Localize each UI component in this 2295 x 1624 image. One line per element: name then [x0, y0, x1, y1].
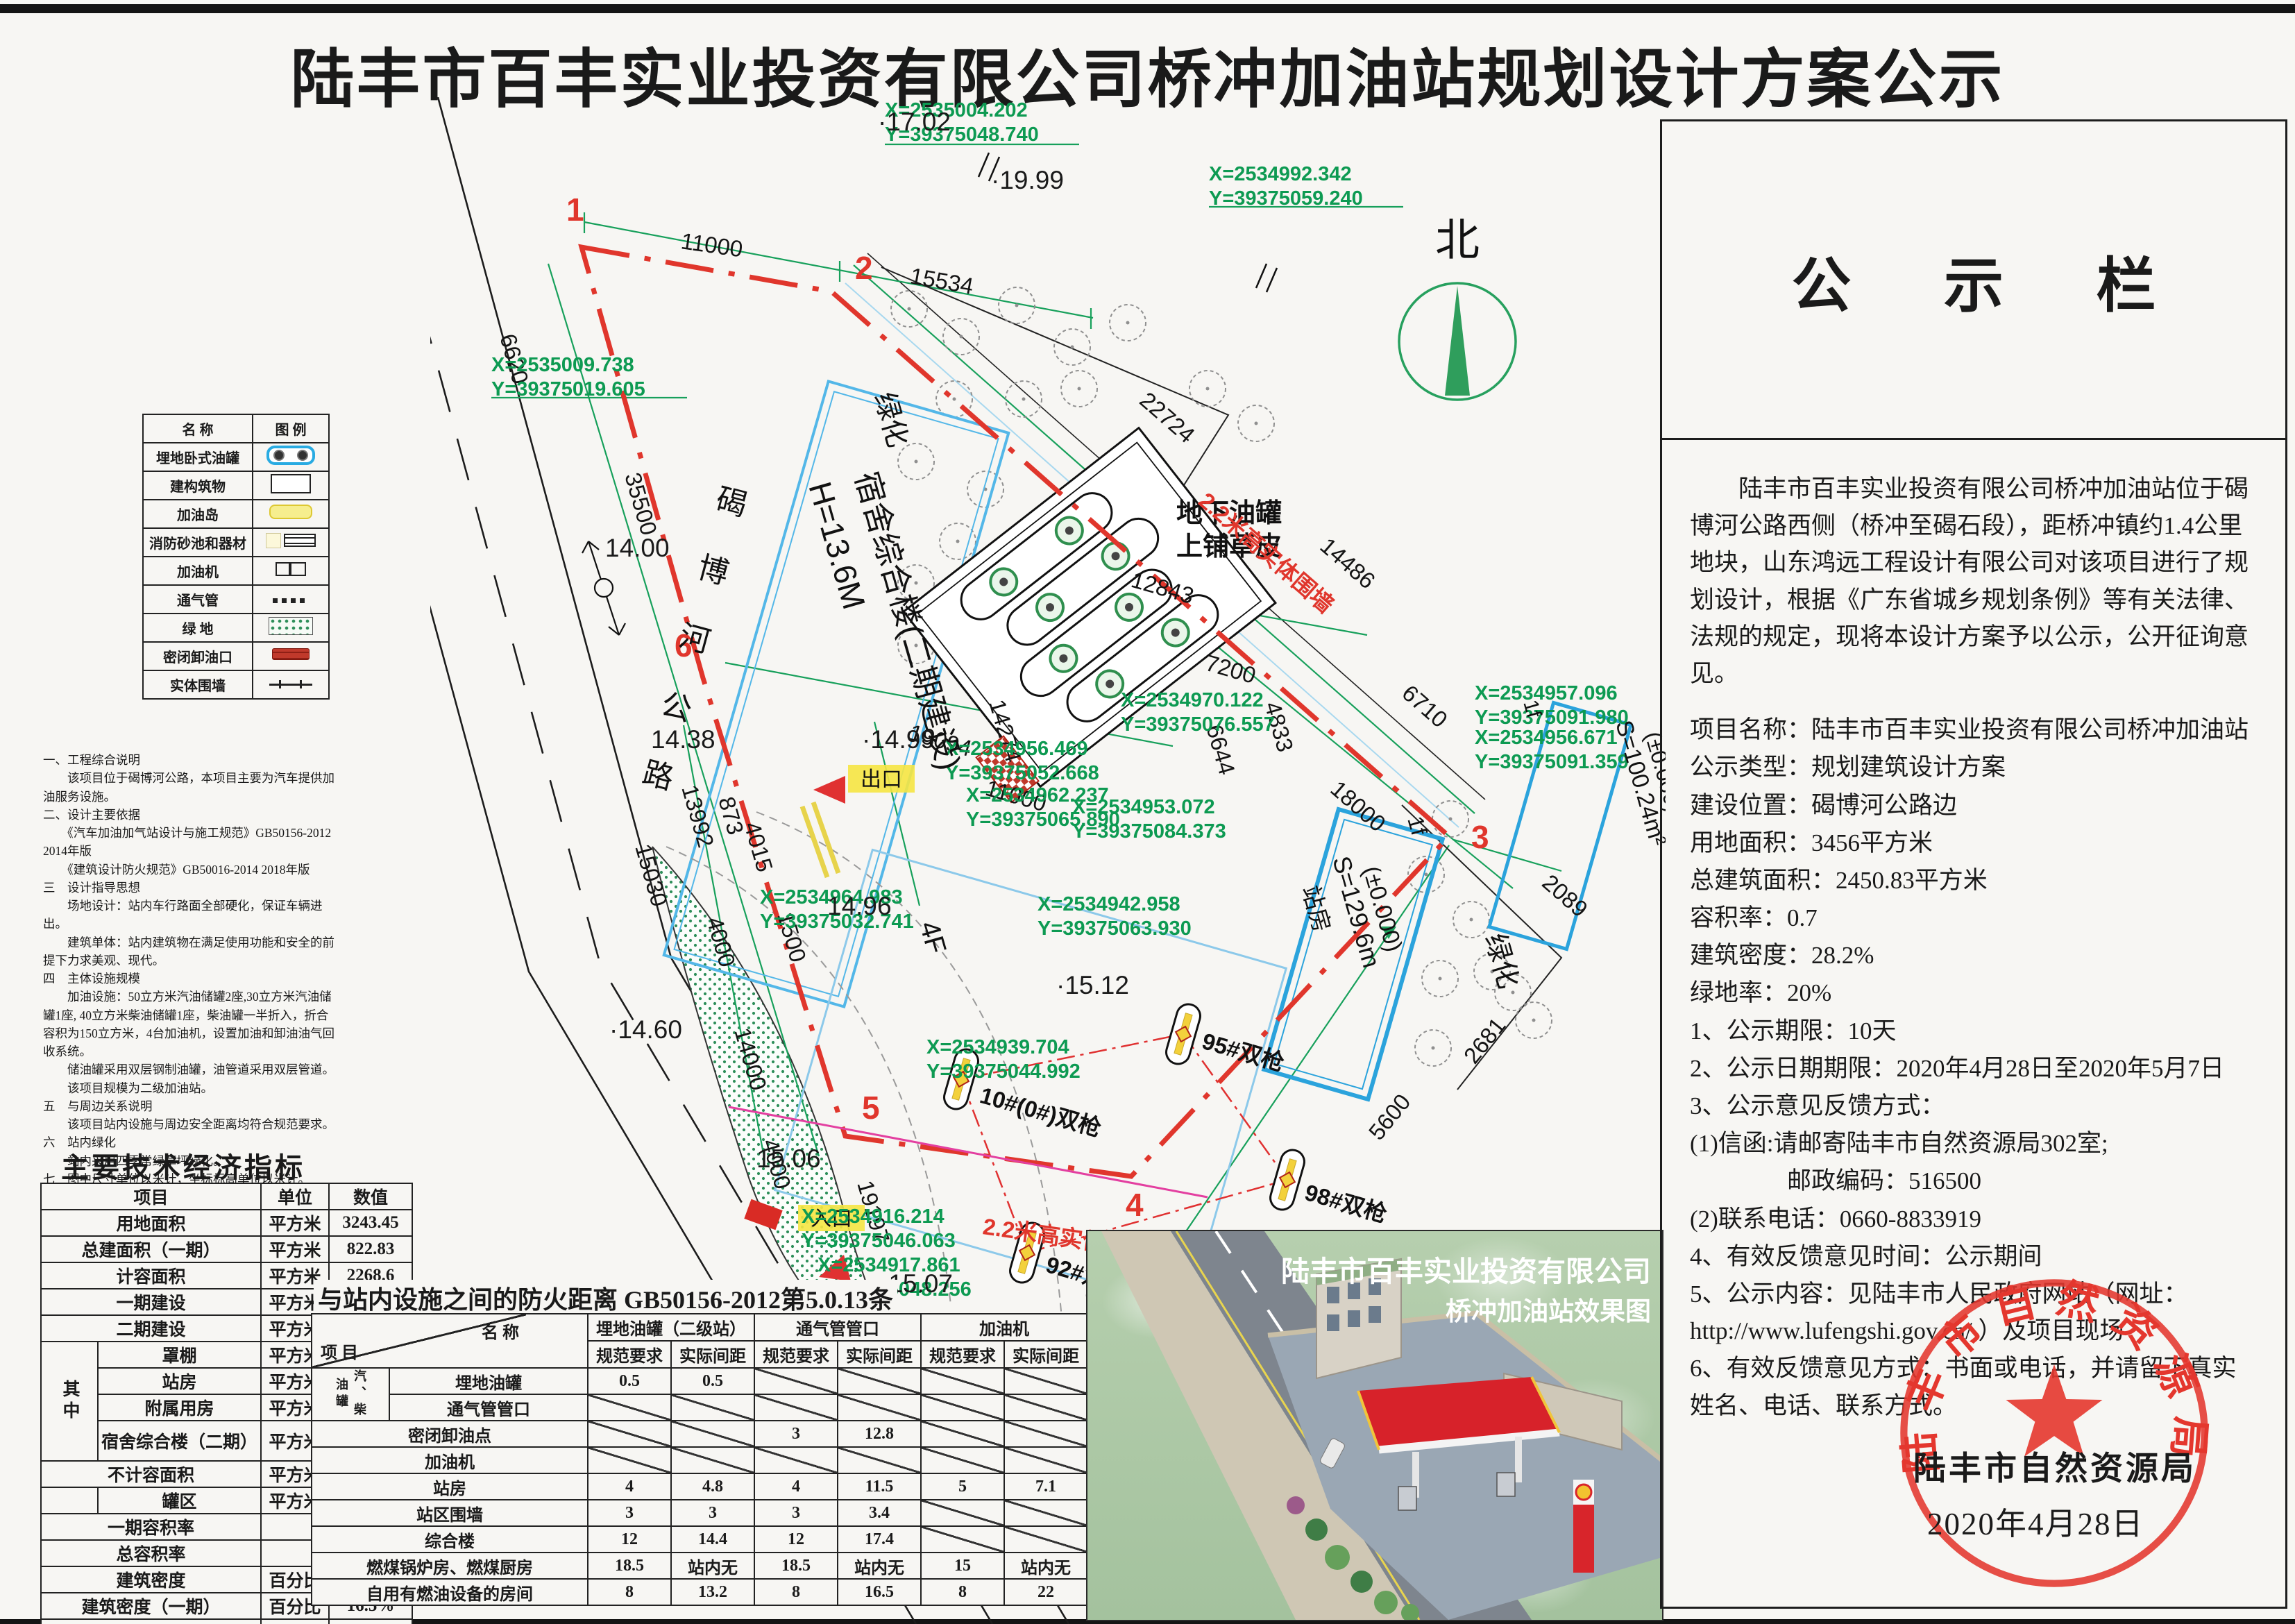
legend-row: 埋地卧式油罐	[143, 443, 329, 471]
solid-wall-icon	[269, 680, 312, 688]
svg-text:Y=39375019.605: Y=39375019.605	[491, 378, 645, 400]
legend-row: 加油机	[143, 557, 329, 585]
price-totem-3d	[1573, 1480, 1594, 1573]
table-row: 加油机	[312, 1447, 1087, 1473]
legend-row: 通气管	[143, 585, 329, 614]
svg-text:18000: 18000	[1326, 775, 1391, 836]
dispenser-icon	[276, 562, 306, 576]
legend-row: 建构筑物	[143, 471, 329, 500]
legend-header-name: 名 称	[143, 414, 253, 443]
svg-text:14486: 14486	[1315, 532, 1380, 593]
render-caption-2: 桥冲加油站效果图	[1446, 1297, 1651, 1326]
svg-text:4015: 4015	[739, 819, 778, 875]
legend-row: 消防砂池和器材	[143, 528, 329, 557]
corner-number: 5	[862, 1090, 880, 1126]
legend-header-icon: 图 例	[253, 414, 329, 443]
svg-text:Y=39375052.668: Y=39375052.668	[945, 762, 1099, 784]
svg-text:Y=39375059.240: Y=39375059.240	[1209, 187, 1363, 210]
dispenser-label: 10#(0#)双枪	[977, 1082, 1104, 1141]
unload-port-icon	[272, 648, 310, 660]
board-title: 公 示 栏	[1662, 121, 2285, 440]
svg-text:14.00: 14.00	[605, 534, 670, 562]
svg-text:2089: 2089	[1537, 869, 1593, 922]
design-notes: 一、工程综合说明 该项目位于碣博河公路，本项目主要为汽车提供加油服务设施。 二、…	[43, 751, 334, 1188]
corner-number: 1	[566, 192, 584, 228]
svg-text:X=2534942.958: X=2534942.958	[1038, 893, 1180, 915]
svg-text:Y=39375091.980: Y=39375091.980	[1475, 707, 1629, 729]
green-area-label: 绿化	[868, 389, 913, 450]
svg-text:X=2534992.342: X=2534992.342	[1209, 163, 1352, 185]
svg-text:X=2534956.671: X=2534956.671	[1475, 727, 1618, 749]
vent-pipe-icon	[273, 598, 309, 603]
svg-text:X=2534953.072: X=2534953.072	[1072, 796, 1215, 818]
table-row: 站房 44.8411.557.1	[312, 1473, 1087, 1500]
table-row: 站区围墙 3333.4	[312, 1500, 1087, 1526]
notice-board-panel: 公 示 栏 陆丰市百丰实业投资有限公司桥冲加油站位于碣博河公路西侧（桥冲至碣石段…	[1660, 119, 2287, 1609]
legend-row: 实体围墙	[143, 670, 329, 699]
svg-text:X=2535009.738: X=2535009.738	[491, 354, 634, 376]
svg-text:Y=39375046.063: Y=39375046.063	[802, 1230, 956, 1252]
perspective-render: 陆丰市百丰实业投资有限公司 桥冲加油站效果图	[1086, 1230, 1663, 1621]
svg-text:7200: 7200	[1203, 650, 1259, 688]
green-area-label: 绿化	[1479, 930, 1523, 992]
fire-table-title: 与站内设施之间的防火距离 GB50156-2012第5.0.13条	[314, 1280, 897, 1316]
indicators-title: 主要技术经济指标	[61, 1145, 305, 1185]
table-row: 绿地率百分比20%	[41, 1619, 412, 1624]
corner-number: 2	[855, 250, 873, 286]
fire-distance-table: 名 称 项 目 埋地油罐（二级站） 通气管管口 加油机 规范要求实际间距 规范要…	[311, 1313, 1088, 1606]
exit-label: 出口	[861, 768, 902, 791]
table-row: 总建面积（一期）平方米822.83	[41, 1236, 412, 1262]
notice-sheet: 陆丰市百丰实业投资有限公司桥冲加油站规划设计方案公示	[0, 0, 2295, 1624]
board-paragraph: 陆丰市百丰实业投资有限公司桥冲加油站位于碣博河公路西侧（桥冲至碣石段），距桥冲镇…	[1690, 471, 2260, 692]
svg-text:X=2534916.214: X=2534916.214	[802, 1206, 945, 1228]
svg-text:Y=39375091.359: Y=39375091.359	[1475, 751, 1629, 773]
table-row: 自用有燃油设备的房间 813.2816.5822	[312, 1579, 1087, 1605]
legend-row: 加油岛	[143, 500, 329, 528]
table-row: 密闭卸油点 312.8	[312, 1421, 1087, 1447]
legend-table: 名 称 图 例 埋地卧式油罐 建构筑物 加油岛 消防砂池和器材 加油机 通气管 …	[142, 414, 330, 700]
table-row: 通气管管口	[312, 1394, 1087, 1421]
legend-row: 绿 地	[143, 614, 329, 642]
svg-text:·17.02: ·17.02	[878, 108, 951, 136]
svg-text:X=2534970.122: X=2534970.122	[1121, 689, 1264, 711]
dispenser-label: 98#双枪	[1302, 1179, 1390, 1227]
svg-text:Y=39375084.373: Y=39375084.373	[1072, 820, 1226, 843]
svg-text:5600: 5600	[1364, 1089, 1416, 1144]
station-name-label: 站房	[1296, 883, 1335, 936]
svg-text:·19.99: ·19.99	[991, 166, 1064, 194]
svg-text:·15.12: ·15.12	[1056, 971, 1129, 999]
corner-number: 3	[1471, 819, 1489, 855]
table-row: 燃煤锅炉房、燃煤厨房 18.5站内无18.5站内无15站内无	[312, 1553, 1087, 1579]
official-seal: 陆丰市自然资源局	[1891, 1270, 2217, 1596]
north-arrow: 北	[1399, 215, 1516, 400]
render-caption-1: 陆丰市百丰实业投资有限公司	[1281, 1255, 1651, 1287]
exit-marker: 出口	[813, 765, 915, 804]
svg-text:Y=39375076.557: Y=39375076.557	[1121, 713, 1275, 736]
svg-text:11000: 11000	[679, 228, 745, 262]
table-row: 用地面积平方米3243.45	[41, 1210, 412, 1236]
svg-text:6710: 6710	[1397, 679, 1453, 732]
buried-tank-icon	[266, 446, 315, 465]
table-row: 综合楼 1214.41217.4	[312, 1526, 1087, 1553]
fire-equipment-icon	[284, 534, 316, 547]
seal-agency-text: 陆丰市自然资源局	[1913, 1441, 2196, 1489]
svg-text:X=2534939.704: X=2534939.704	[926, 1036, 1069, 1058]
table-row: 汽、柴油罐 埋地油罐 0.50.5	[312, 1368, 1087, 1394]
svg-text:Y=39375063.930: Y=39375063.930	[1038, 917, 1192, 940]
north-label: 北	[1435, 215, 1480, 265]
diagonal-header: 名 称 项 目	[312, 1314, 526, 1367]
svg-text:X=2534957.096: X=2534957.096	[1475, 682, 1618, 704]
top-edge-rule	[0, 4, 2295, 13]
seal-date-text: 2020年4月28日	[1927, 1498, 2144, 1543]
corner-number: 4	[1126, 1187, 1144, 1223]
svg-text:15.06: 15.06	[756, 1144, 821, 1173]
svg-text:14.96: 14.96	[827, 892, 892, 920]
green-space-icon	[269, 617, 313, 635]
building-icon	[271, 474, 311, 493]
svg-text:2681: 2681	[1459, 1013, 1511, 1068]
fuel-island-icon	[269, 505, 312, 519]
svg-text:Y=39375044.992: Y=39375044.992	[926, 1060, 1081, 1083]
svg-text:·14.60: ·14.60	[609, 1015, 682, 1044]
legend-row: 密闭卸油口	[143, 642, 329, 670]
fire-sand-icon	[266, 533, 281, 548]
